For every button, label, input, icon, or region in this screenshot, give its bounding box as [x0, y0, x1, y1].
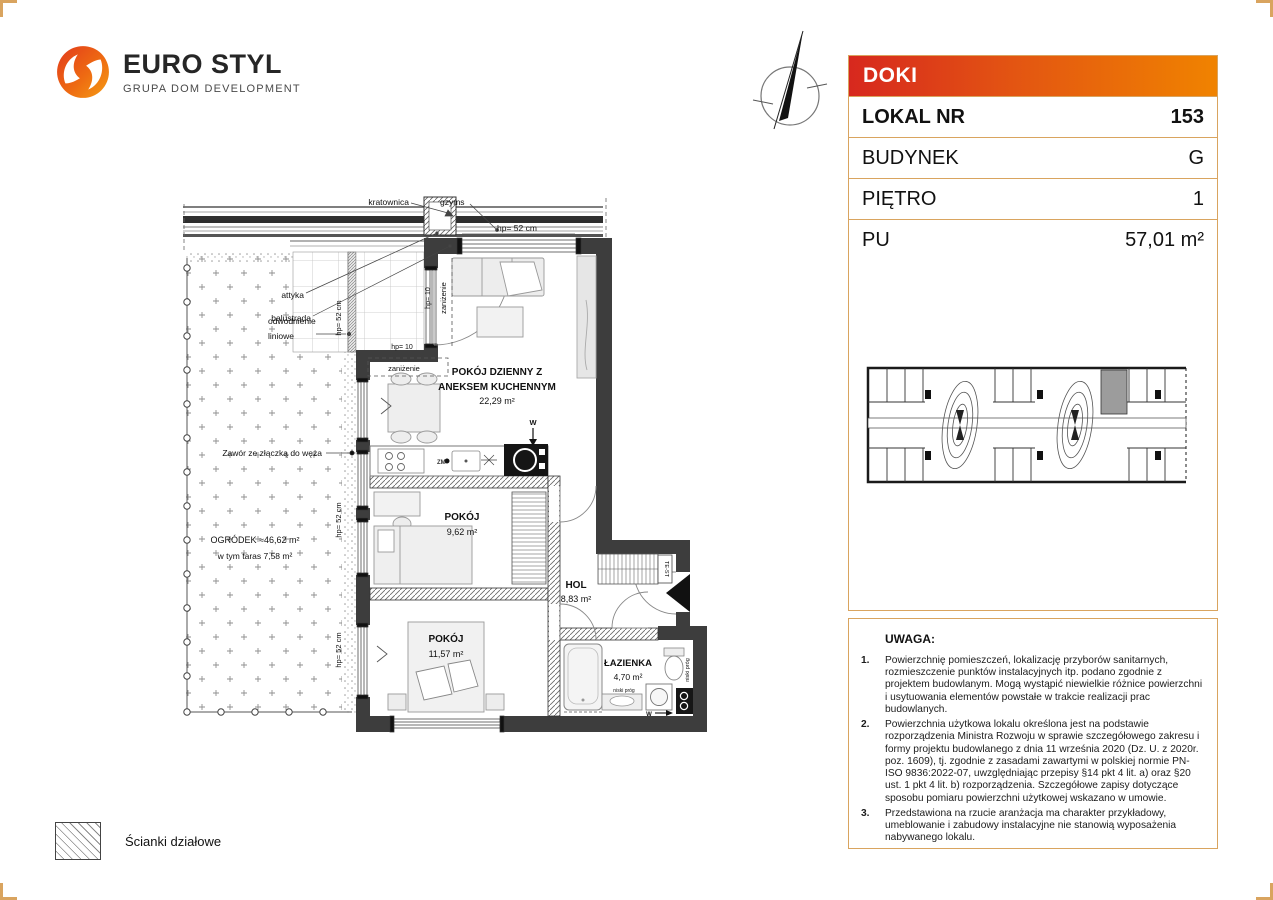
- unit-row-budynek: BUDYNEK G: [849, 137, 1217, 178]
- hp52-label: hp= 52 cm: [497, 223, 537, 233]
- crop-mark-bottom-left: [0, 883, 17, 900]
- garden-label-1: OGRÓDEK ≈46,62 m²: [211, 535, 300, 545]
- logo: EURO STYL GRUPA DOM DEVELOPMENT: [55, 44, 301, 100]
- bath-area: 4,70 m²: [614, 672, 643, 682]
- unit-card: DOKI LOKAL NR 153 BUDYNEK G PIĘTRO 1 PU …: [848, 55, 1218, 611]
- vent-w-label-bath: W: [646, 712, 652, 718]
- garden-label-2: w tym taras 7,58 m²: [217, 551, 293, 561]
- partition-wall-swatch: [55, 822, 101, 860]
- building-overview-plan: [865, 362, 1199, 492]
- odwodnienie-label-2: liniowe: [268, 331, 294, 341]
- bedroom1-furniture: [374, 492, 546, 584]
- highlighted-unit: [1101, 370, 1127, 414]
- note-item-2: 2. Powierzchnia użytkowa lokalu określon…: [861, 719, 1205, 805]
- crop-mark-top-left: [0, 0, 17, 17]
- notes-title: UWAGA:: [885, 632, 1205, 646]
- crop-mark-top-right: [1256, 0, 1273, 17]
- notes-box: UWAGA: 1. Powierzchnię pomieszczeń, loka…: [848, 618, 1218, 849]
- hol-furniture: [598, 554, 672, 584]
- brand-name: EURO STYL: [123, 49, 301, 80]
- terrace: [290, 241, 424, 352]
- unit-row-pu: PU 57,01 m²: [849, 219, 1217, 260]
- attyka-label: attyka: [281, 290, 304, 300]
- row-label: PU: [862, 229, 890, 252]
- note-number: 2.: [861, 719, 885, 805]
- note-item-3: 3. Przedstawiona na rzucie aranżacja ma …: [861, 808, 1205, 845]
- legend-label: Ścianki działowe: [125, 834, 221, 849]
- north-arrow-icon: [746, 26, 836, 131]
- zawor-label: Zawór ze złączką do węża: [222, 448, 322, 458]
- test-label: TE-ST: [663, 561, 669, 578]
- vent-w-label-kitchen: W: [529, 418, 537, 427]
- gzyms-label: gzyms: [440, 197, 465, 207]
- row-label: BUDYNEK: [862, 147, 959, 170]
- crop-mark-bottom-right: [1256, 883, 1273, 900]
- hp52-label-v2: hp= 52 cm: [334, 502, 343, 537]
- hp10-label-h: hp= 10: [391, 344, 413, 351]
- bath-label: ŁAZIENKA: [604, 658, 652, 669]
- hol-area: 8,83 m²: [561, 594, 592, 604]
- zanizenie-label-v: zaniżenie: [439, 282, 448, 314]
- zm-label: ZM: [437, 460, 446, 466]
- floor-plan-sheet: EURO STYL GRUPA DOM DEVELOPMENT: [0, 0, 1273, 900]
- niski-prog-label-sink: niski próg: [613, 688, 635, 694]
- hp10-label-v: hp= 10: [425, 287, 432, 309]
- floor-plan-drawing: kratownica gzyms hp= 52 cm attyka balust…: [175, 190, 750, 755]
- row-value: 153: [1171, 106, 1204, 129]
- unit-row-pietro: PIĘTRO 1: [849, 178, 1217, 219]
- project-header: DOKI: [849, 56, 1217, 96]
- hp52-label-v1: hp= 52 cm: [334, 300, 343, 335]
- hol-label: HOL: [565, 580, 586, 591]
- room2-area: 11,57 m²: [429, 649, 464, 659]
- brand-tagline: GRUPA DOM DEVELOPMENT: [123, 83, 301, 95]
- eurostyl-logo-icon: [55, 44, 111, 100]
- odwodnienie-label-1: odwodnienie: [268, 316, 316, 326]
- room1-area: 9,62 m²: [447, 527, 478, 537]
- note-text: Powierzchnię pomieszczeń, lokalizację pr…: [885, 655, 1205, 716]
- row-value: G: [1188, 147, 1204, 170]
- note-number: 1.: [861, 655, 885, 716]
- niski-prog-label-wall: niski próg: [685, 658, 691, 682]
- room2-label: POKÓJ: [428, 632, 463, 645]
- note-number: 3.: [861, 808, 885, 845]
- living-room-label-2: ANEKSEM KUCHENNYM: [438, 382, 556, 393]
- row-label: PIĘTRO: [862, 188, 936, 211]
- kratownica-label: kratownica: [368, 197, 409, 207]
- room1-label: POKÓJ: [444, 510, 479, 523]
- door-opening: [549, 486, 559, 522]
- living-room-area: 22,29 m²: [479, 396, 515, 406]
- note-text: Powierzchnia użytkowa lokalu określona j…: [885, 719, 1205, 805]
- row-value: 1: [1193, 188, 1204, 211]
- legend: Ścianki działowe: [55, 822, 221, 860]
- unit-row-lokal: LOKAL NR 153: [849, 96, 1217, 137]
- row-label: LOKAL NR: [862, 106, 965, 129]
- door-opening: [549, 604, 559, 640]
- hp52-label-v3: hp= 52 cm: [334, 632, 343, 667]
- zanizenie-label-h: zaniżenie: [388, 364, 420, 373]
- living-room-label-1: POKÓJ DZIENNY Z: [452, 365, 542, 378]
- note-item-1: 1. Powierzchnię pomieszczeń, lokalizację…: [861, 655, 1205, 716]
- row-value: 57,01 m²: [1125, 229, 1204, 252]
- note-text: Przedstawiona na rzucie aranżacja ma cha…: [885, 808, 1205, 845]
